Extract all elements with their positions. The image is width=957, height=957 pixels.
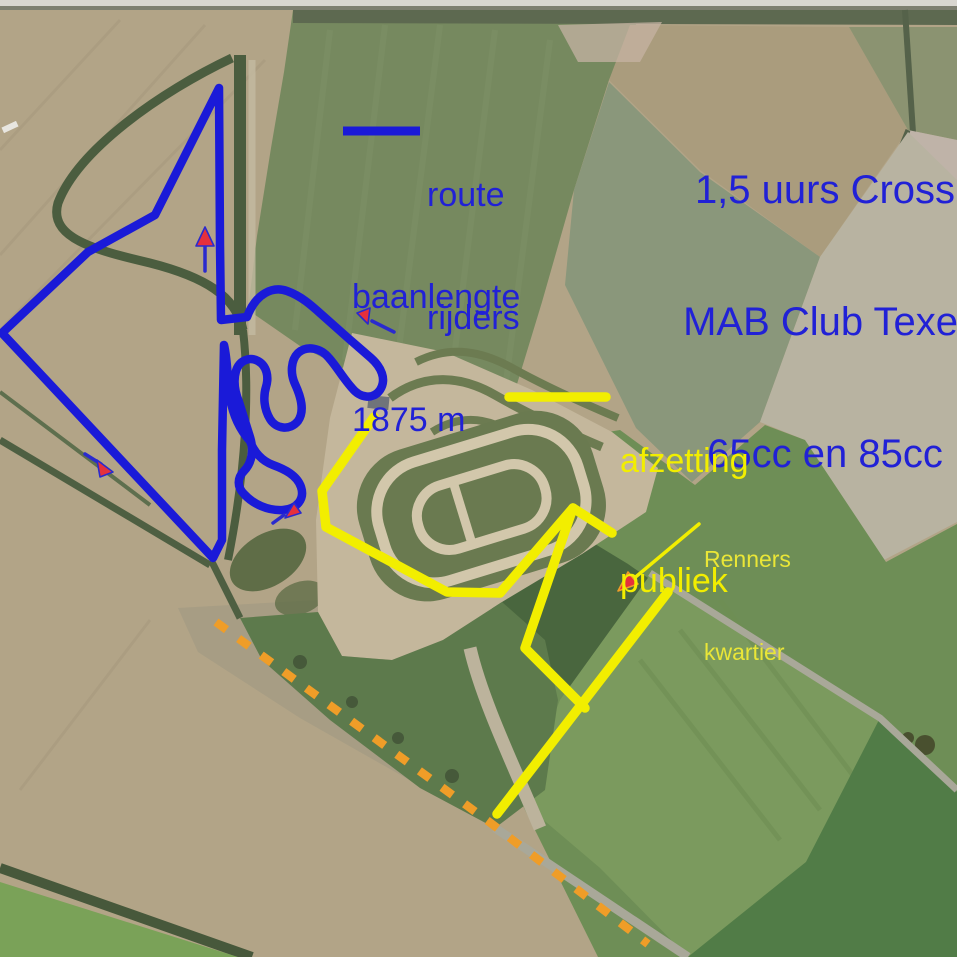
top-hedge-band bbox=[293, 10, 957, 25]
map-canvas bbox=[0, 0, 957, 957]
top-road-edge bbox=[0, 6, 957, 10]
annotated-satellite-map: 1,5 uurs Cross MAB Club Texel 65cc en 85… bbox=[0, 0, 957, 957]
top-road-strip bbox=[0, 0, 957, 6]
